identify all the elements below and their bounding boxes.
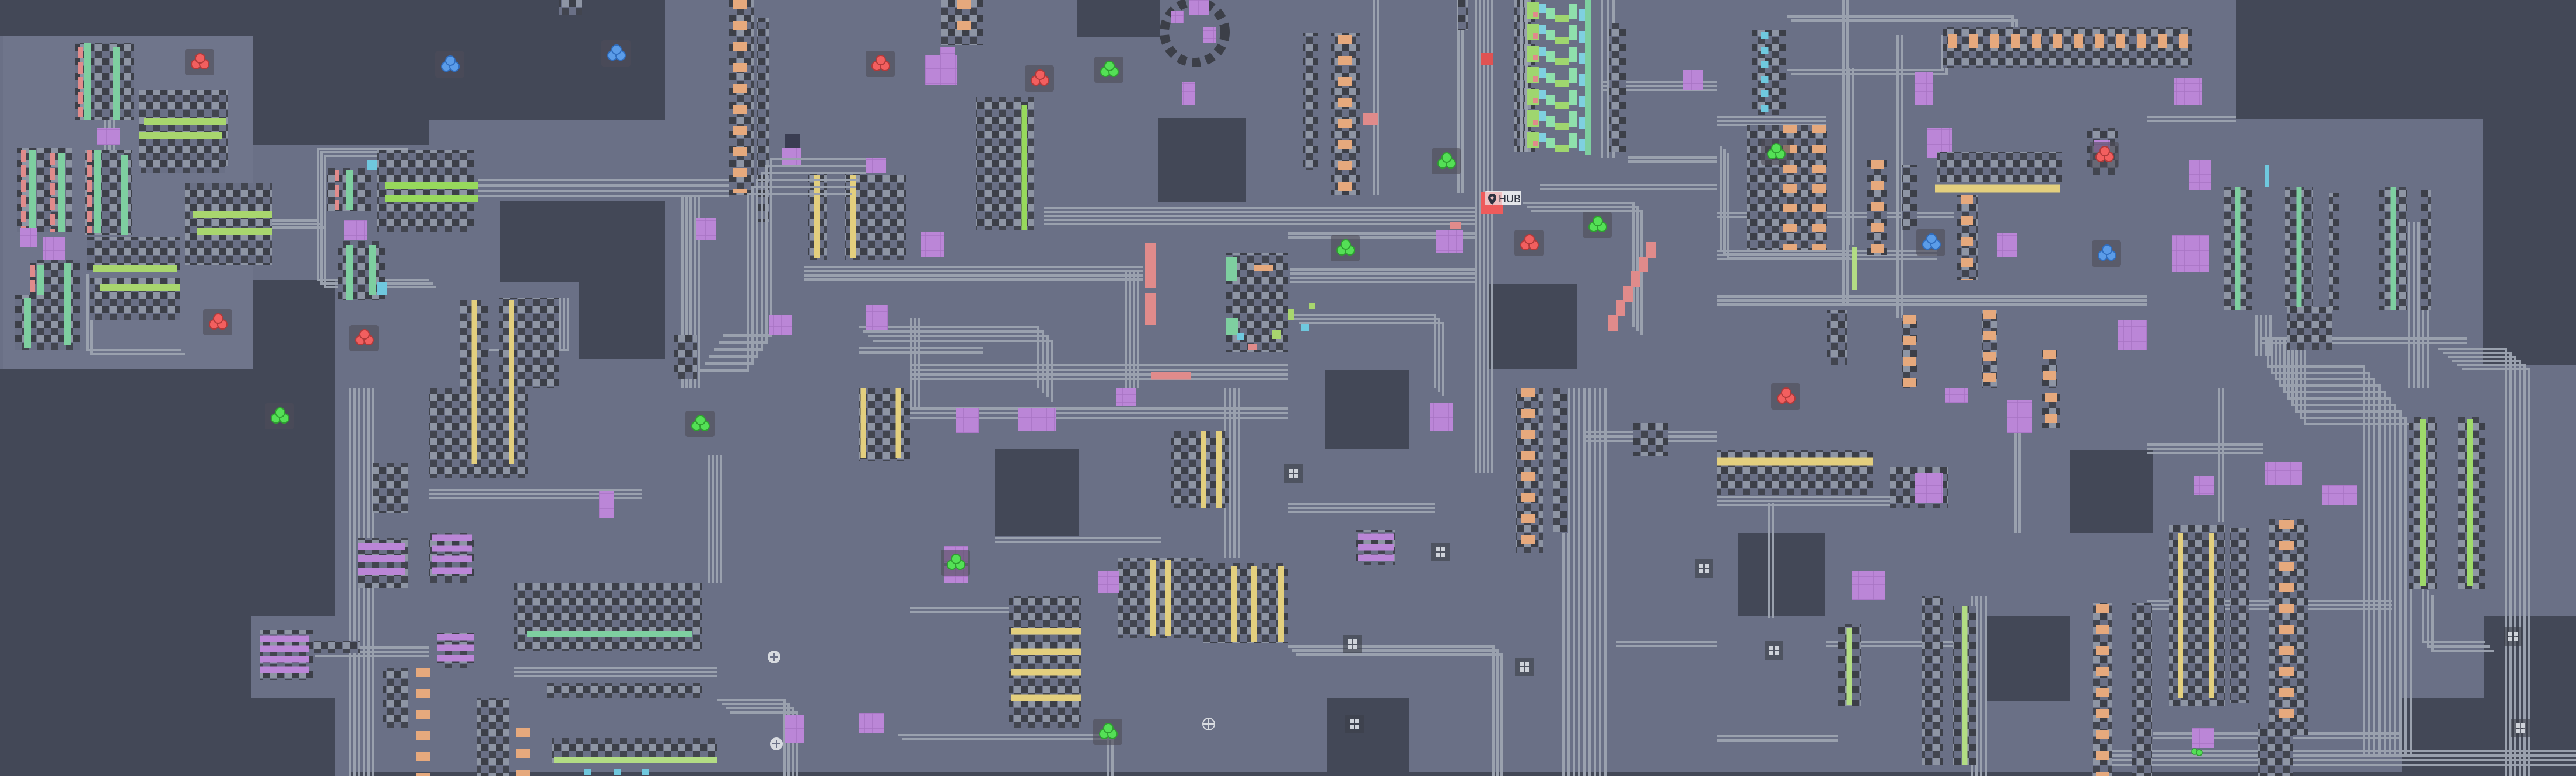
svg-text:HUB: HUB xyxy=(1499,193,1521,205)
